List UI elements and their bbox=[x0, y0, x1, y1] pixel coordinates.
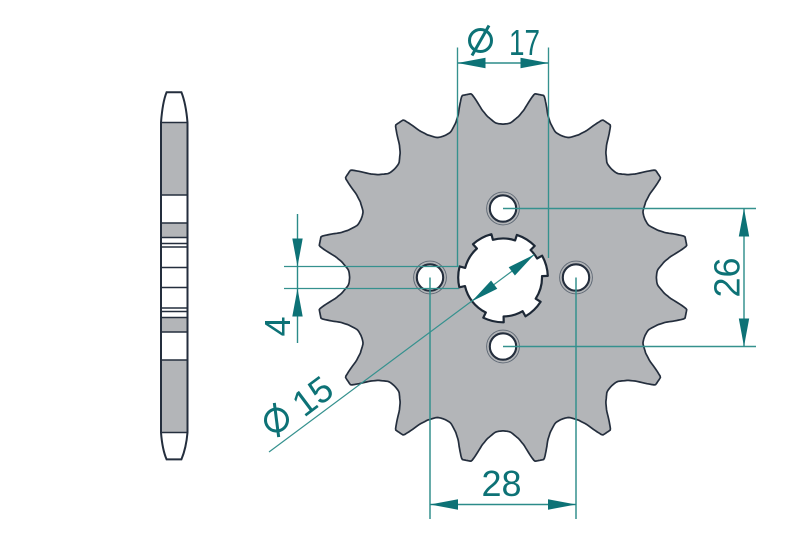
svg-text:28: 28 bbox=[481, 463, 521, 504]
svg-text:26: 26 bbox=[707, 257, 748, 297]
svg-text:17: 17 bbox=[509, 22, 540, 63]
svg-text:4: 4 bbox=[257, 316, 298, 336]
